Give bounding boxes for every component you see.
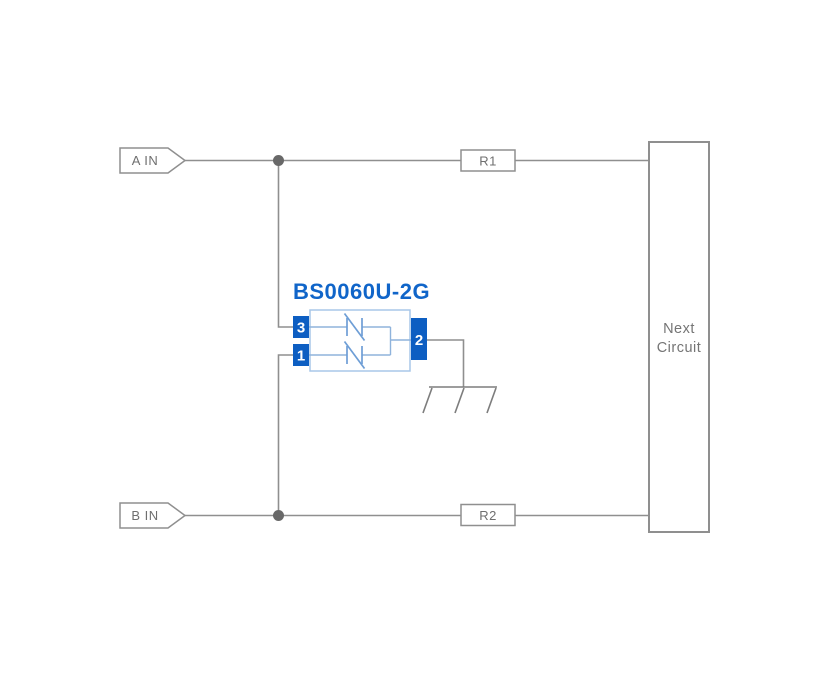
chassis-ground-icon xyxy=(423,387,497,413)
pin-1: 1 xyxy=(293,344,309,366)
pin-3-label: 3 xyxy=(297,320,305,337)
port-tag-a-in: A IN xyxy=(120,148,185,173)
pin-3: 3 xyxy=(293,316,309,338)
resistor-r1-label: R1 xyxy=(479,154,497,169)
next-circuit-label-line1: Next xyxy=(663,321,695,337)
next-circuit-label-line2: Circuit xyxy=(657,340,702,356)
component-title: BS0060U-2G xyxy=(293,279,430,304)
port-tag-b-in: B IN xyxy=(120,503,185,528)
port-b-label: B IN xyxy=(131,508,158,523)
resistor-r2-label: R2 xyxy=(479,508,497,523)
resistor-r1: R1 xyxy=(461,150,515,171)
wire-net-b xyxy=(185,355,649,516)
junction-dot-a xyxy=(273,155,284,166)
pin-2: 2 xyxy=(411,318,427,360)
pin-2-label: 2 xyxy=(415,332,423,349)
circuit-schematic: A IN B IN R1 R2 Next Circuit BS0060U-2G xyxy=(0,0,832,675)
next-circuit-block: Next Circuit xyxy=(649,142,709,532)
next-circuit-box xyxy=(649,142,709,532)
pin-1-label: 1 xyxy=(297,348,305,365)
schematic-svg: A IN B IN R1 R2 Next Circuit BS0060U-2G xyxy=(0,0,832,675)
junction-dot-b xyxy=(273,510,284,521)
wire-pin2-to-ground xyxy=(427,340,464,387)
wire-a-to-pin3 xyxy=(279,161,294,328)
resistor-r2: R2 xyxy=(461,505,515,526)
tvs-component: BS0060U-2G xyxy=(293,279,430,371)
port-a-label: A IN xyxy=(132,153,159,168)
wire-b-to-pin1 xyxy=(279,355,294,516)
